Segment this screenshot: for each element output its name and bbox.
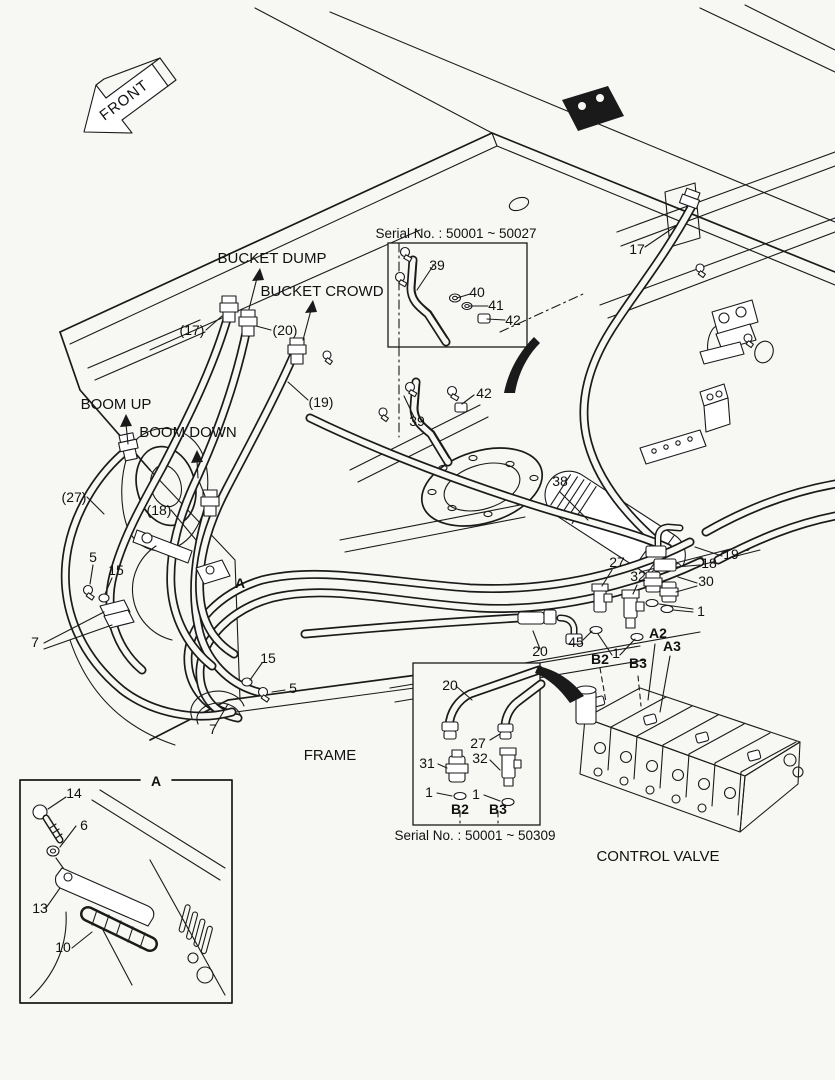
part-label-39-topbox: 39 (429, 257, 445, 273)
part-label-40: 40 (469, 284, 485, 300)
part-label-18r: 18 (701, 555, 717, 571)
leader-lines (44, 226, 722, 726)
part-label-1b-botbox: 1 (472, 786, 480, 802)
part-label-19p: (19) (309, 394, 334, 410)
part-label-39-mid: 39 (409, 413, 425, 429)
part-label-45: 45 (568, 634, 584, 650)
port-label-b2: B2 (591, 651, 609, 667)
part-label-32-botbox: 32 (472, 750, 488, 766)
frame-label: FRAME (304, 747, 357, 764)
part-label-30r: 30 (698, 573, 714, 589)
bucket-crowd-label: BUCKET CROWD (260, 283, 383, 300)
part-label-20m: 20 (532, 643, 548, 659)
part-label-20-botbox: 20 (442, 677, 458, 693)
hydraulic-piping-diagram: FRONT (0, 0, 835, 1080)
serial-top-label: Serial No. : 50001 ~ 50027 (376, 226, 537, 241)
port-label-b2-botbox: B2 (451, 801, 469, 817)
frame-line-art (60, 5, 835, 745)
right-brackets (640, 183, 760, 580)
detail-a-inset (20, 780, 232, 1003)
part-label-15b: 15 (260, 650, 276, 666)
detail-a-reference-label: A (235, 575, 245, 591)
part-label-32r: 32 (630, 568, 646, 584)
part-label-10: 10 (55, 939, 71, 955)
serial-bottom-label: Serial No. : 50001 ~ 50309 (395, 828, 556, 843)
part-label-27p: (27) (62, 489, 87, 505)
front-direction-arrow: FRONT (84, 58, 176, 133)
part-label-20p: (20) (273, 322, 298, 338)
part-label-41: 41 (488, 297, 504, 313)
bucket-crowd-arrow-icon (303, 300, 317, 340)
part-label-42-topbox: 42 (505, 312, 521, 328)
part-label-42-mid: 42 (476, 385, 492, 401)
parts-diagram-page: FRONT (0, 0, 835, 1080)
part-label-5a: 5 (89, 549, 97, 565)
part-label-6: 6 (80, 817, 88, 833)
part-label-13: 13 (32, 900, 48, 916)
hose-clamps (84, 530, 270, 724)
control-valve-label: CONTROL VALVE (596, 848, 719, 865)
part-label-31-botbox: 31 (419, 755, 435, 771)
part-label-14: 14 (66, 785, 82, 801)
part-label-5b: 5 (289, 680, 297, 696)
part-label-27r: 27 (609, 554, 625, 570)
part-label-1m: 1 (612, 645, 620, 661)
part-label-19r: 19 (723, 546, 739, 562)
part-label-7b: 7 (209, 721, 217, 737)
detail-a-title: A (151, 773, 161, 789)
port-label-b3: B3 (629, 655, 647, 671)
part-label-17: 17 (629, 241, 645, 257)
part-label-17p: (17) (180, 322, 205, 338)
part-label-38: 38 (552, 473, 568, 489)
port-label-b3-botbox: B3 (489, 801, 507, 817)
bucket-dump-label: BUCKET DUMP (218, 250, 327, 267)
port-label-a3: A3 (663, 638, 681, 654)
part-label-18p: (18) (147, 502, 172, 518)
part-label-15a: 15 (108, 562, 124, 578)
part-label-7a: 7 (31, 634, 39, 650)
part-label-1r: 1 (697, 603, 705, 619)
boom-down-label: BOOM DOWN (139, 424, 237, 441)
part-label-1a-botbox: 1 (425, 784, 433, 800)
part-label-27-botbox: 27 (470, 735, 486, 751)
boom-up-label: BOOM UP (81, 396, 152, 413)
control-valve (576, 686, 803, 832)
